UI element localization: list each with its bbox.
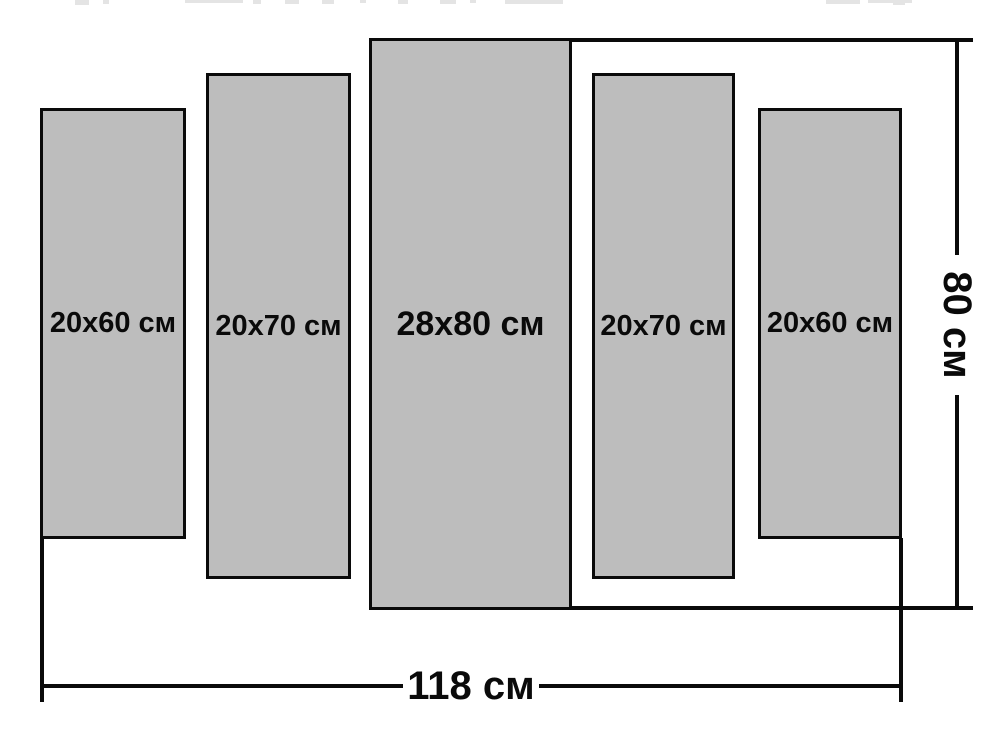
panel-1-20x60: 20x60 см (40, 108, 186, 539)
panel-3-size-label: 28x80 см (396, 305, 544, 344)
height-dim-bottom-extension-line (570, 606, 973, 610)
cropped-text-fragment (868, 0, 912, 3)
panel-3-28x80-center: 28x80 см (369, 38, 572, 610)
cropped-text-fragment (360, 0, 366, 3)
panel-5-size-label: 20x60 см (767, 307, 893, 340)
panel-2-20x70: 20x70 см (206, 73, 351, 579)
cropped-text-fragment (322, 0, 334, 4)
panel-4-20x70: 20x70 см (592, 73, 735, 579)
cropped-text-fragment (185, 0, 243, 3)
modular-picture-size-diagram: 20x60 см 20x70 см 28x80 см 20x70 см 20x6… (0, 0, 1000, 739)
cropped-text-fragment (285, 0, 299, 4)
cropped-text-fragment (470, 0, 476, 3)
cropped-text-fragment (253, 0, 261, 4)
width-dim-right-extension-line (899, 538, 903, 702)
cropped-text-fragment (440, 0, 456, 4)
panel-1-size-label: 20x60 см (50, 307, 176, 340)
cropped-text-fragment (103, 0, 109, 4)
cropped-text-remnant (0, 0, 1000, 8)
cropped-text-fragment (75, 0, 89, 5)
panel-2-size-label: 20x70 см (215, 310, 341, 343)
total-height-label: 80 см (935, 255, 979, 395)
panel-5-20x60: 20x60 см (758, 108, 902, 539)
panel-4-size-label: 20x70 см (600, 310, 726, 343)
cropped-text-fragment (398, 0, 408, 4)
total-width-label: 118 см (403, 661, 539, 711)
cropped-text-fragment (826, 0, 860, 4)
cropped-text-fragment (893, 0, 905, 5)
cropped-text-fragment (505, 0, 563, 4)
width-dim-left-extension-line (40, 538, 44, 702)
